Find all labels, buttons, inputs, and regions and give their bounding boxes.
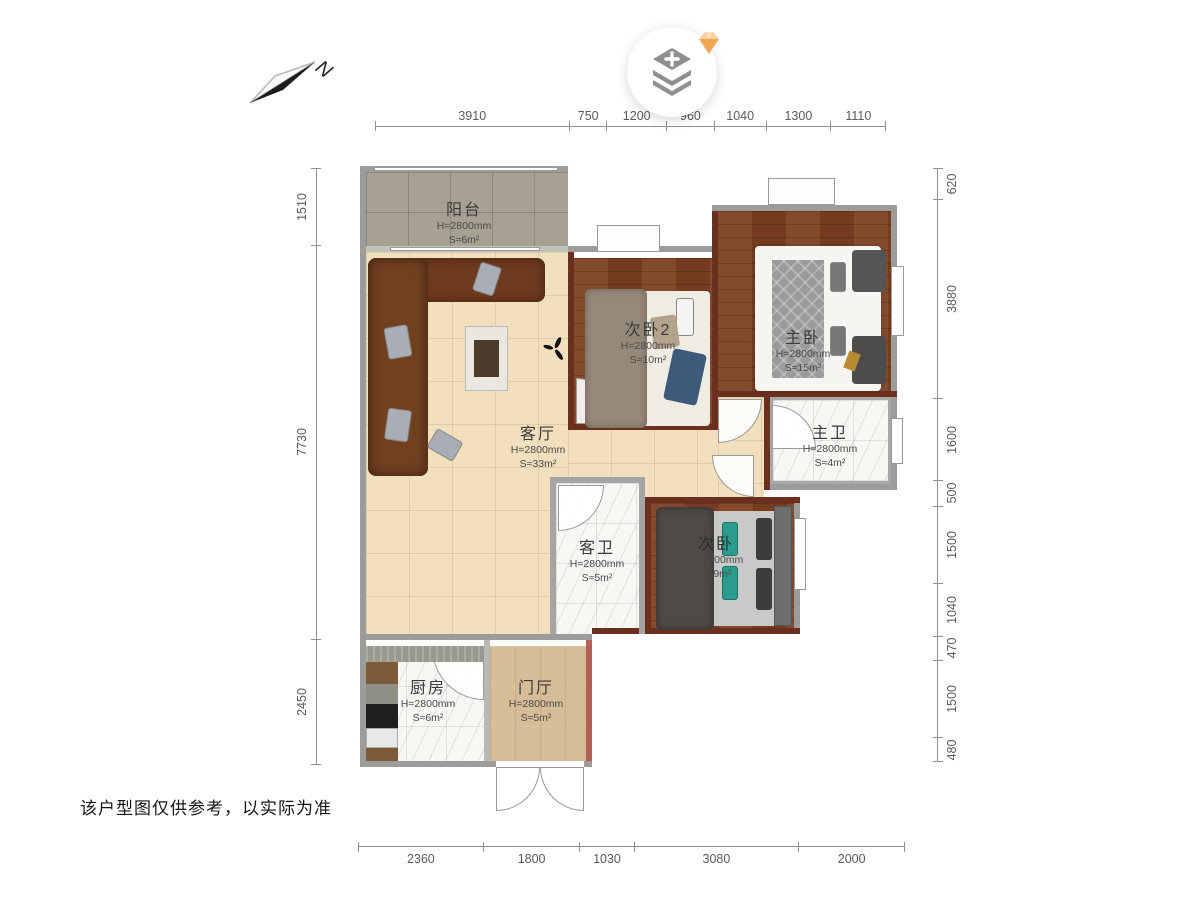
wall bbox=[645, 497, 800, 503]
dimension-label: 2450 bbox=[295, 689, 309, 717]
room-label-balcony: 阳台 H=2800mm S≈6m² bbox=[437, 196, 492, 247]
dimension-label: 1510 bbox=[295, 193, 309, 221]
wall bbox=[712, 391, 897, 397]
dimension-segment: 1500 bbox=[937, 660, 963, 737]
wall bbox=[586, 640, 592, 761]
bedroom-side-window bbox=[794, 518, 806, 590]
floorplan-drawing: 阳台 H=2800mm S≈6m² 客厅 H=2800mm S≈33m² 次卧2… bbox=[360, 166, 898, 770]
wall bbox=[645, 497, 651, 634]
dimension-label: 1110 bbox=[831, 109, 886, 123]
entrance-door-right bbox=[540, 767, 584, 811]
wall bbox=[360, 634, 592, 640]
dimension-segment: 470 bbox=[937, 636, 963, 660]
kitchen-counter bbox=[366, 684, 398, 704]
add-layer-button[interactable] bbox=[627, 27, 717, 117]
dimension-label: 3080 bbox=[634, 852, 798, 866]
floorplan-page: N 39107501200960104013001110 23601800103… bbox=[0, 0, 1200, 900]
dimension-segment: 620 bbox=[937, 168, 963, 200]
dimension-label: 3880 bbox=[945, 285, 959, 313]
kitchen-cabinet bbox=[366, 748, 398, 761]
dimension-ruler-bottom: 23601800103030802000 bbox=[358, 846, 905, 869]
wall bbox=[568, 252, 574, 430]
coffee-table-top bbox=[474, 340, 499, 377]
dimension-label: 2000 bbox=[798, 852, 905, 866]
wall bbox=[712, 211, 718, 430]
dimension-segment: 750 bbox=[570, 104, 607, 127]
wall bbox=[639, 477, 645, 634]
dimension-label: 1040 bbox=[714, 109, 766, 123]
dimension-segment: 2000 bbox=[798, 846, 905, 869]
dimension-label: 620 bbox=[945, 173, 959, 194]
dimension-ruler-right: 62038801600500150010404701500480 bbox=[937, 168, 963, 762]
dimension-label: 1300 bbox=[766, 109, 831, 123]
disclaimer-text: 该户型图仅供参考，以实际为准 bbox=[80, 794, 332, 819]
kitchen-sink bbox=[366, 728, 398, 748]
dimension-ruler-top: 39107501200960104013001110 bbox=[375, 104, 886, 127]
dimension-label: 1600 bbox=[945, 426, 959, 454]
room-label-bedroom: 次卧 H=2800mm S≈9m² bbox=[689, 530, 744, 581]
master-nightstand bbox=[852, 250, 886, 292]
dimension-segment: 1510 bbox=[291, 168, 317, 245]
dimension-label: 500 bbox=[945, 483, 959, 504]
wall bbox=[764, 484, 897, 490]
room-label-masterbath: 主卫 H=2800mm S≈4m² bbox=[803, 419, 858, 470]
bedroom2-pillow bbox=[676, 298, 694, 336]
masterbath-window bbox=[891, 418, 903, 464]
master-window bbox=[768, 178, 835, 205]
room-label-living: 客厅 H=2800mm S≈33m² bbox=[511, 420, 566, 471]
room-label-kitchen: 厨房 H=2800mm S≈6m² bbox=[401, 674, 456, 725]
dimension-label: 1030 bbox=[580, 852, 635, 866]
room-label-bedroom2: 次卧2 H=2800mm S≈10m² bbox=[621, 316, 676, 367]
dimension-label: 3910 bbox=[375, 109, 570, 123]
dimension-segment: 2360 bbox=[358, 846, 484, 869]
ceiling-fan-icon bbox=[542, 336, 568, 362]
entrance-door-left bbox=[496, 767, 540, 811]
dimension-segment: 3910 bbox=[375, 104, 570, 127]
dimension-label: 7730 bbox=[295, 429, 309, 457]
sofa bbox=[368, 258, 428, 476]
dimension-segment: 1800 bbox=[484, 846, 580, 869]
bedroom-pillow-dark bbox=[756, 568, 772, 610]
dimension-segment: 3080 bbox=[634, 846, 798, 869]
dimension-segment: 2450 bbox=[291, 640, 317, 765]
master-side-window bbox=[891, 266, 904, 336]
dimension-label: 2360 bbox=[358, 852, 484, 866]
wall bbox=[550, 477, 645, 483]
room-label-master: 主卧 H=2800mm S≈15m² bbox=[776, 324, 831, 375]
dimension-segment: 1040 bbox=[714, 104, 766, 127]
dimension-segment: 1110 bbox=[831, 104, 886, 127]
bedroom2-window bbox=[597, 225, 660, 252]
dimension-segment: 480 bbox=[937, 737, 963, 762]
dimension-label: 470 bbox=[945, 638, 959, 659]
wall bbox=[764, 397, 770, 490]
balcony-window bbox=[374, 167, 558, 171]
dimension-segment: 1500 bbox=[937, 506, 963, 583]
master-pillow bbox=[830, 326, 846, 356]
dimension-segment: 500 bbox=[937, 481, 963, 507]
wall bbox=[484, 640, 490, 761]
dimension-segment: 3880 bbox=[937, 200, 963, 399]
compass-label: N bbox=[311, 56, 335, 83]
kitchen-counter bbox=[366, 646, 484, 662]
wall bbox=[550, 477, 556, 634]
gem-icon bbox=[695, 30, 723, 56]
kitchen-cabinet bbox=[366, 662, 398, 684]
dimension-label: 1800 bbox=[484, 852, 580, 866]
kitchen-stove bbox=[366, 704, 398, 728]
master-pillow bbox=[830, 262, 846, 292]
sofa-pillow bbox=[384, 407, 412, 442]
dimension-segment: 7730 bbox=[291, 245, 317, 640]
dimension-ruler-left: 151077302450 bbox=[291, 168, 317, 765]
layers-add-icon bbox=[648, 46, 696, 98]
dimension-segment: 1030 bbox=[580, 846, 635, 869]
room-label-guestbath: 客卫 H=2800mm S≈5m² bbox=[570, 534, 625, 585]
balcony-slider bbox=[390, 247, 540, 251]
compass-north-icon: N bbox=[235, 45, 335, 115]
bedroom-wardrobe bbox=[774, 506, 792, 626]
dimension-segment: 1600 bbox=[937, 399, 963, 481]
room-label-foyer: 门厅 H=2800mm S≈5m² bbox=[509, 674, 564, 725]
dimension-segment: 1300 bbox=[766, 104, 831, 127]
wall bbox=[712, 205, 897, 211]
dimension-segment: 1040 bbox=[937, 583, 963, 636]
bedroom-pillow-dark bbox=[756, 518, 772, 560]
dimension-label: 1040 bbox=[945, 596, 959, 624]
dimension-label: 750 bbox=[570, 109, 607, 123]
dimension-label: 1500 bbox=[945, 531, 959, 559]
dimension-label: 1500 bbox=[945, 685, 959, 713]
dimension-label: 480 bbox=[945, 739, 959, 760]
